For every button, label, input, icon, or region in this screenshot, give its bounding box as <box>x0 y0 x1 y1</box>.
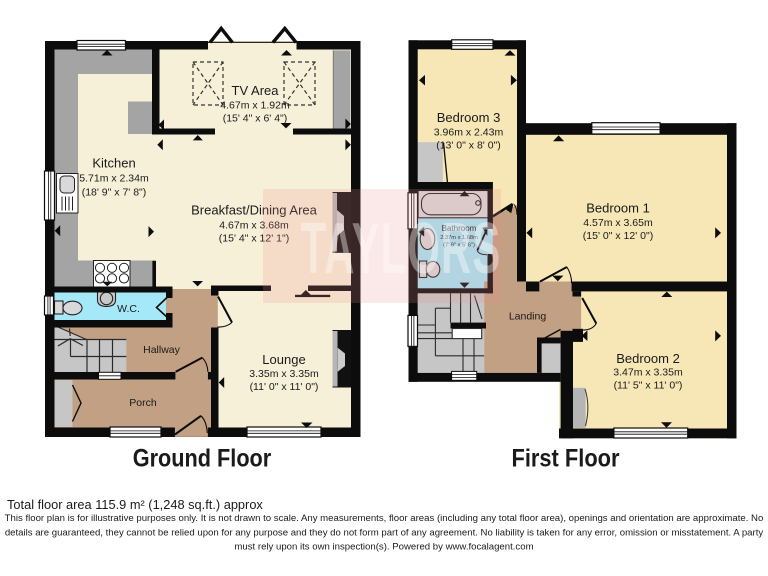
svg-text:Porch: Porch <box>129 397 157 409</box>
svg-text:TV Area: TV Area <box>232 83 280 98</box>
svg-text:(11' 5" x 11' 0"): (11' 5" x 11' 0") <box>614 380 683 392</box>
svg-text:must rely upon its own inspect: must rely upon its own inspection(s). Po… <box>234 542 533 553</box>
svg-text:(11' 0" x 11' 0"): (11' 0" x 11' 0") <box>250 381 319 393</box>
svg-text:details are guaranteed, they c: details are guaranteed, they cannot be r… <box>5 528 764 539</box>
svg-text:Bedroom 3: Bedroom 3 <box>437 110 501 125</box>
svg-text:(13' 0" x 8' 0"): (13' 0" x 8' 0") <box>436 140 501 152</box>
svg-text:First Floor: First Floor <box>512 445 620 473</box>
svg-text:Ground Floor: Ground Floor <box>133 445 272 473</box>
svg-text:Kitchen: Kitchen <box>92 156 135 171</box>
svg-text:4.67m x 1.92m: 4.67m x 1.92m <box>220 100 290 112</box>
svg-text:Landing: Landing <box>509 311 547 323</box>
svg-text:(18' 9" x 7' 8"): (18' 9" x 7' 8") <box>82 187 147 199</box>
svg-text:3.35m x 3.35m: 3.35m x 3.35m <box>249 368 319 380</box>
svg-text:(15' 0" x 12' 0"): (15' 0" x 12' 0") <box>583 230 653 242</box>
svg-text:TAYLORS: TAYLORS <box>301 209 502 289</box>
svg-text:W.C.: W.C. <box>117 303 140 315</box>
svg-text:3.96m x 2.43m: 3.96m x 2.43m <box>434 127 504 139</box>
svg-text:(15' 4" x 6' 4"): (15' 4" x 6' 4") <box>223 113 288 125</box>
svg-text:3.47m x 3.35m: 3.47m x 3.35m <box>613 367 683 379</box>
svg-text:Bedroom 1: Bedroom 1 <box>586 201 650 216</box>
svg-text:5.71m x 2.34m: 5.71m x 2.34m <box>79 173 149 185</box>
svg-text:Bedroom 2: Bedroom 2 <box>616 351 680 366</box>
svg-text:This floor plan is for illustr: This floor plan is for illustrative purp… <box>5 513 764 524</box>
svg-text:Total floor area 115.9 m² (1,2: Total floor area 115.9 m² (1,248 sq.ft.)… <box>7 497 263 512</box>
svg-text:Hallway: Hallway <box>143 344 181 356</box>
svg-text:4.57m x 3.65m: 4.57m x 3.65m <box>583 217 653 229</box>
svg-text:Lounge: Lounge <box>262 352 305 367</box>
